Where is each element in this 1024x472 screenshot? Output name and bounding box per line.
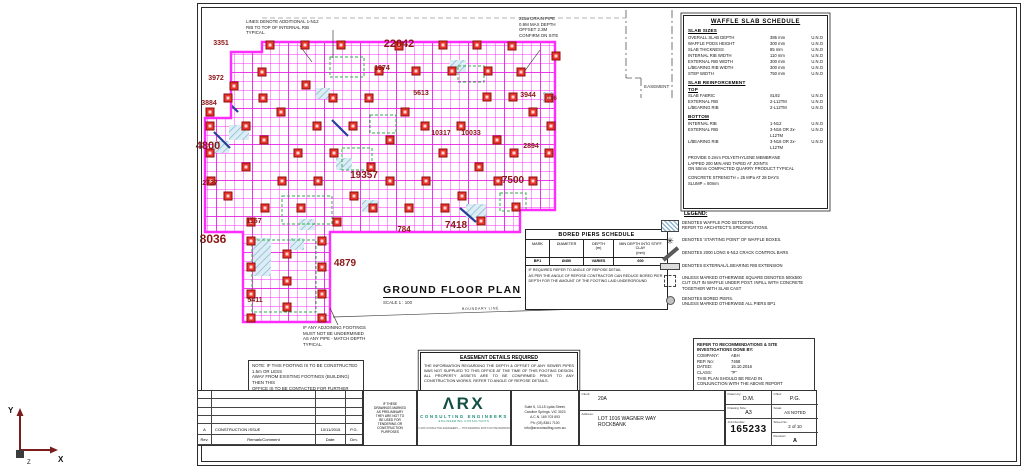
- drawing-sheet: 3351397238844800273780361157541122042197…: [0, 0, 1024, 472]
- piers-data-cell: Ø450: [550, 258, 584, 267]
- slab-reinforcement-heading: SLAB REINFORCEMENT: [688, 80, 823, 85]
- piers-note: AS PER THE ANGLE OF REPOSE CONTRACTOR CA…: [529, 274, 665, 284]
- drawing-info-grid: Drawn by: D.M. Chkd: P.G. Drawing Size: …: [725, 390, 817, 446]
- legend-item: DENOTES BORED PIERS. UNLESS MARKED OTHER…: [658, 296, 858, 307]
- rev-empty-cell: [198, 408, 212, 416]
- site-row: Address: LOT 1016 WAGNER WAY ROCKBANK: [580, 411, 724, 446]
- slab-size-value: 750 mm: [770, 71, 806, 77]
- rev-empty-cell: [212, 391, 316, 399]
- rev-empty-cell: [316, 391, 346, 399]
- legend-item: DENOTES 2000 LONG 6-N12 CRACK CONTROL BA…: [658, 250, 858, 258]
- y-axis-label: Y: [8, 406, 14, 415]
- chkd-cell: Chkd: P.G.: [772, 391, 818, 405]
- legend-item: DENOTES EXTERNAL/L.BEARING RIB EXTENSION: [658, 263, 858, 271]
- scale-cell: Scale: AS NOTED: [772, 405, 818, 419]
- top-reinforcement-heading: TOP: [688, 87, 823, 92]
- bottom-reinf-note: U.N.O: [806, 127, 823, 139]
- size-value: A3: [726, 410, 771, 416]
- site-investigation-box: REFER TO RECOMMENDATIONS & SITE INVESTIG…: [693, 338, 815, 392]
- plan-scale-text: SCALE 1 : 100: [383, 300, 521, 305]
- job-number-value: 165233: [726, 424, 771, 435]
- rev-empty-cell: [212, 399, 316, 407]
- legend-item: ✳DENOTES 'STARTING POINT' OF WAFFLE BOXE…: [658, 237, 858, 246]
- concrete-strength-note: CONCRETE STRENGTH = 25 MPa AT 28 DAYS SL…: [688, 175, 823, 186]
- rev-data-cell: A: [198, 424, 212, 435]
- rev-empty-cell: [316, 399, 346, 407]
- legend-title: LEGEND:: [684, 211, 858, 217]
- bottom-reinf-value: 3-N16 OR 2x-L12TM: [770, 139, 806, 151]
- sheet-cell: Sheet No.: 2 of 10: [772, 419, 818, 433]
- chkd-value: P.G.: [772, 396, 818, 402]
- rev-empty-cell: [212, 416, 316, 424]
- company-address: Suite 5, 13-15 Lydia Street, Caroline Sp…: [511, 390, 579, 446]
- drawn-cell: Drawn by: D.M.: [726, 391, 772, 405]
- slab-sizes-heading: SLAB SIZES: [688, 28, 823, 33]
- rev-empty-cell: [316, 416, 346, 424]
- z-axis-label: Z: [27, 460, 31, 466]
- piers-header-cell: MARK: [526, 240, 550, 258]
- revision-table: ACONSTRUCTION ISSUE10/11/2015P.G.Rev.Rem…: [197, 390, 363, 446]
- slab-size-note: U.N.O: [806, 71, 823, 77]
- rev-empty-cell: [198, 391, 212, 399]
- bottom-reinf-value: 3-N16 OR 2x-L12TM: [770, 127, 806, 139]
- crack-control-bar-icon: [662, 247, 679, 262]
- bottom-reinf-row: L/BEARING RIB3-N16 OR 2x-L12TMU.N.O: [688, 139, 823, 151]
- rev-empty-cell: [316, 408, 346, 416]
- slab-size-row: STEP WIDTH750 mmU.N.O: [688, 71, 823, 77]
- additional-rib-note: LINES DENOTE ADDITIONAL 1-N12 RIB TO TOP…: [246, 19, 336, 36]
- legend-item: DENOTES WAFFLE POD SETDOWN. REFER TO ARC…: [658, 220, 858, 232]
- revision-cell: Revision: A: [772, 433, 818, 446]
- legend-item-text: DENOTES WAFFLE POD SETDOWN. REFER TO ARC…: [682, 220, 768, 231]
- top-reinf-row: L/BEARING RIB2-L12TMU.N.O: [688, 105, 823, 111]
- easement-details-box: EASEMENT DETAILS REQUIRED THE INFORMATIO…: [420, 352, 578, 393]
- drain-pipe-note: 225ø DRAIN PIPE 0.9M MAX DEPTH OFFSET 2.…: [519, 16, 579, 39]
- legend-item-text: DENOTES BORED PIERS. UNLESS MARKED OTHER…: [682, 296, 775, 307]
- legend-item-text: DENOTES 2000 LONG 6-N12 CRACK CONTROL BA…: [682, 250, 788, 255]
- waffle-schedule-title: WAFFLE SLAB SCHEDULE: [688, 19, 823, 25]
- rev-header-cell: Remark/Comment: [212, 435, 316, 445]
- revision-value: A: [772, 438, 818, 444]
- client-cell: Client: 20A Address: LOT 1016 WAGNER WAY…: [579, 390, 725, 446]
- client-value: 20A: [580, 396, 724, 403]
- bottom-reinf-label: EXTERNAL RIB: [688, 127, 770, 139]
- rev-data-cell: CONSTRUCTION ISSUE: [212, 424, 316, 435]
- starting-point-icon: ✳: [658, 237, 682, 246]
- legend-item-text: UNLESS MARKED OTHERWISE SQUARE DENOTES 5…: [682, 275, 803, 291]
- adjoining-footings-note: IF ANY ADJOINING FOOTINGS MUST NOT BE UN…: [303, 325, 383, 348]
- rib-extension-icon: [658, 263, 682, 271]
- bottom-reinforcement-heading: BOTTOM: [688, 114, 823, 119]
- bored-piers-schedule: BORED PIERS SCHEDULE MARKDIAMETERDEPTH (…: [525, 229, 668, 310]
- slab-sizes-rows: OVERALL SLAB DEPTH385 mmU.N.OWAFFLE PODS…: [688, 35, 823, 78]
- top-reinf-label: L/BEARING RIB: [688, 105, 770, 111]
- site-investigation-title: REFER TO RECOMMENDATIONS & SITE INVESTIG…: [697, 342, 811, 353]
- site-investigation-footer: THIS PLAN SHOULD BE READ IN CONJUNCTION …: [697, 376, 811, 387]
- easement-box-body: THE INFORMATION REGARDING THE DEPTH & OF…: [424, 363, 574, 383]
- x-axis-label: X: [58, 455, 64, 464]
- easement-box-title: EASEMENT DETAILS REQUIRED: [424, 355, 574, 361]
- top-reinforcement-rows: SLAB FABRICSL92U.N.OEXTERNAL RIB2-L12TMU…: [688, 93, 823, 111]
- slab-size-label: STEP WIDTH: [688, 71, 770, 77]
- ucs-axis-icon: Y X Z: [6, 404, 66, 466]
- arx-logo-subtitle: CONSULTING ENGINEERS: [418, 414, 510, 419]
- rev-empty-cell: [346, 408, 362, 416]
- piers-data-cell: VARIES: [584, 258, 614, 267]
- legend: LEGEND: DENOTES WAFFLE POD SETDOWN. REFE…: [658, 211, 858, 311]
- plan-title-text: GROUND FLOOR PLAN: [383, 284, 521, 298]
- arx-logo-tagline: ENGINEERING CONSULTANTS: [418, 420, 510, 423]
- legend-item-text: DENOTES EXTERNAL/L.BEARING RIB EXTENSION: [682, 263, 783, 268]
- rev-header-cell: Drn.: [346, 435, 362, 445]
- bored-pier-icon: [658, 296, 682, 305]
- rev-data-cell: 10/11/2015: [316, 424, 346, 435]
- bottom-reinforcement-rows: INTERNAL RIB1-N12U.N.OEXTERNAL RIB3-N16 …: [688, 121, 823, 151]
- legend-item-text: DENOTES 'STARTING POINT' OF WAFFLE BOXES…: [682, 237, 781, 242]
- top-reinf-value: 2-L12TM: [770, 105, 806, 111]
- rev-empty-cell: [346, 399, 362, 407]
- piers-header-cell: DEPTH (m): [584, 240, 614, 258]
- piers-header-cell: DIAMETER: [550, 240, 584, 258]
- rev-data-cell: P.G.: [346, 424, 362, 435]
- rev-empty-cell: [346, 416, 362, 424]
- piers-data-cell: BP1: [526, 258, 550, 267]
- rev-empty-cell: [346, 391, 362, 399]
- bored-piers-table: MARKDIAMETERDEPTH (m)MIN DEPTH INTO STIF…: [526, 240, 667, 266]
- rev-header-cell: Rev.: [198, 435, 212, 445]
- rev-empty-cell: [212, 408, 316, 416]
- starting-point-icon: ✳: [666, 237, 674, 246]
- waffle-pod-setdown-icon: [661, 220, 679, 232]
- rev-empty-cell: [198, 399, 212, 407]
- drawn-value: D.M.: [726, 396, 771, 402]
- scale-value: AS NOTED: [772, 410, 818, 415]
- job-number-cell: Job Number: 165233: [726, 419, 772, 446]
- rev-header-cell: Date:: [316, 435, 346, 445]
- rib-extension-icon: [660, 263, 680, 270]
- client-row: Client: 20A: [580, 391, 724, 411]
- top-reinf-note: U.N.O: [806, 105, 823, 111]
- bored-piers-notes: IF REQUIRED REFER TO ANGLE OF REPOSE DET…: [526, 266, 667, 286]
- plan-title: GROUND FLOOR PLAN SCALE 1 : 100: [383, 284, 521, 305]
- site-investigation-rows: COMPANY:ABHREP. No:7468DATED:15.10.2016C…: [697, 353, 811, 376]
- preliminary-disclaimer: IF THESE DRAWINGS MARKED AS PRELIMINARY …: [363, 390, 417, 446]
- legend-items: DENOTES WAFFLE POD SETDOWN. REFER TO ARC…: [658, 220, 858, 307]
- geo-value: "P": [731, 370, 737, 376]
- cutout-square-icon: [664, 275, 676, 287]
- arx-logo: ΛRX: [418, 395, 510, 412]
- bored-pier-icon: [666, 296, 675, 305]
- bored-piers-title: BORED PIERS SCHEDULE: [526, 230, 667, 240]
- piers-note: IF REQUIRED REFER TO ANGLE OF REPOSE DET…: [529, 268, 665, 273]
- site-value: LOT 1016 WAGNER WAY ROCKBANK: [580, 416, 724, 429]
- geo-label: CLASS:: [697, 370, 731, 376]
- copyright-line: © ARX CONSULTING ENGINEERS — THIS DRAWIN…: [418, 427, 510, 430]
- membrane-note: PROVIDE 0.2mm POLYETHYLENE MEMBRANE LAPP…: [688, 155, 823, 172]
- company-logo-cell: ΛRX CONSULTING ENGINEERS ENGINEERING CON…: [417, 390, 511, 446]
- size-cell: Drawing Size: A3: [726, 405, 772, 419]
- sheet-value: 2 of 10: [772, 424, 818, 429]
- waffle-slab-schedule: WAFFLE SLAB SCHEDULE SLAB SIZES OVERALL …: [683, 15, 828, 209]
- bottom-reinf-label: L/BEARING RIB: [688, 139, 770, 151]
- cutout-square-icon: [658, 275, 682, 287]
- bottom-reinf-row: EXTERNAL RIB3-N16 OR 2x-L12TMU.N.O: [688, 127, 823, 139]
- bottom-reinf-note: U.N.O: [806, 139, 823, 151]
- legend-item: UNLESS MARKED OTHERWISE SQUARE DENOTES 5…: [658, 275, 858, 291]
- rev-empty-cell: [198, 416, 212, 424]
- waffle-pod-setdown-icon: [658, 220, 682, 232]
- crack-control-bar-icon: [658, 250, 682, 258]
